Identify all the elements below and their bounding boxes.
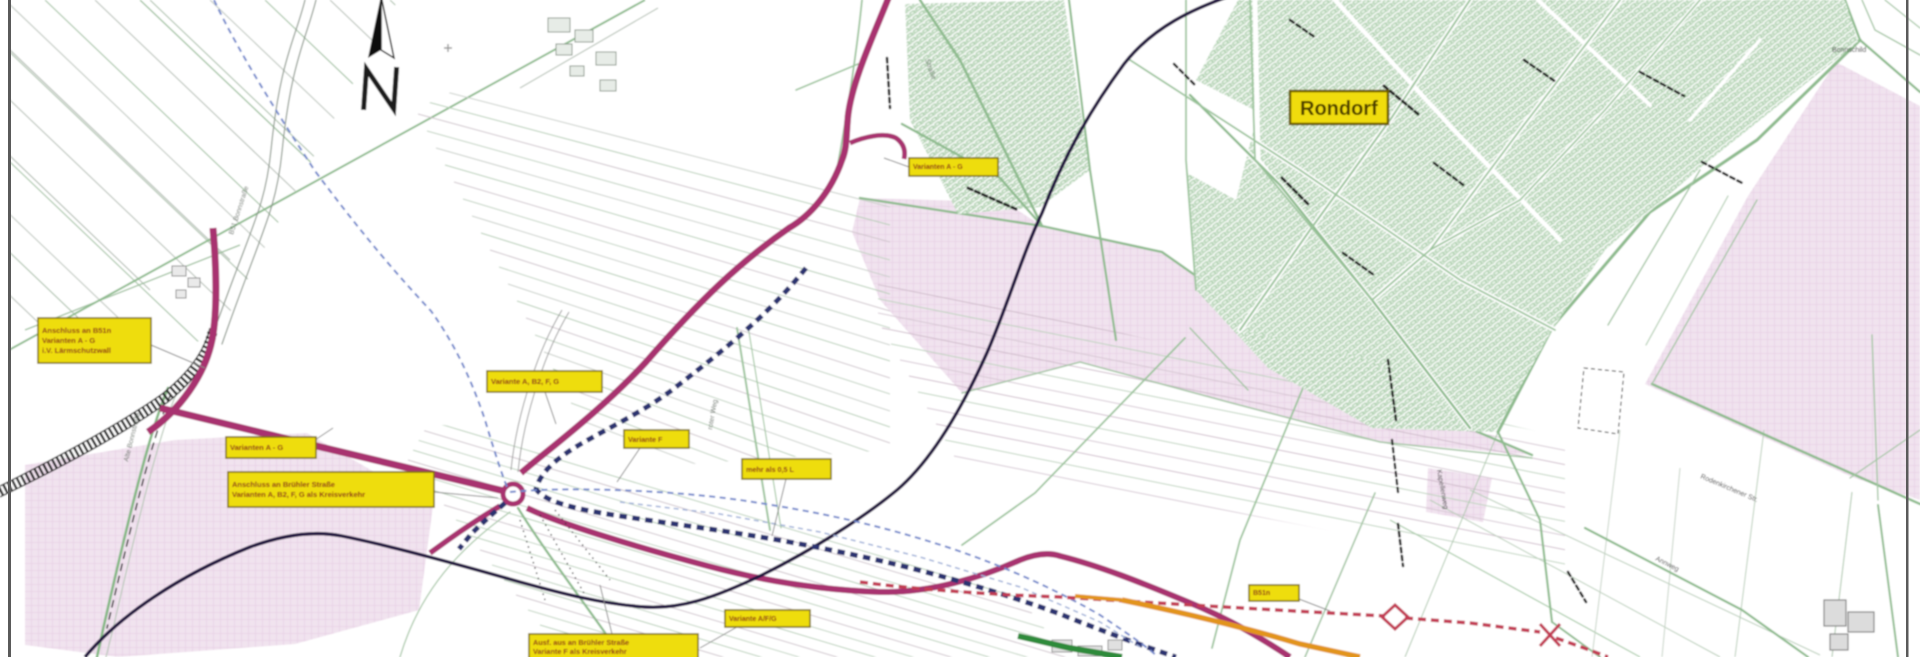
svg-text:Variante F: Variante F: [628, 435, 663, 444]
svg-text:Anschluss an Brühler Straße: Anschluss an Brühler Straße: [232, 480, 335, 489]
svg-text:Variante F als Kreisverkehr: Variante F als Kreisverkehr: [533, 647, 627, 656]
svg-text:Rondorf: Rondorf: [1300, 98, 1378, 120]
svg-text:Varianten A - G: Varianten A - G: [230, 443, 283, 452]
svg-text:i.V. Lärmschutzwall: i.V. Lärmschutzwall: [42, 346, 111, 355]
svg-text:Bonnschild: Bonnschild: [1832, 47, 1866, 54]
svg-text:Varianten A - G: Varianten A - G: [913, 164, 963, 171]
svg-text:Varianten A, B2, F, G als Krei: Varianten A, B2, F, G als Kreisverkehr: [232, 490, 365, 499]
svg-text:B51n: B51n: [1253, 590, 1270, 597]
svg-text:mehr als 0,5 L: mehr als 0,5 L: [746, 465, 795, 474]
svg-text:Variante A/F/G: Variante A/F/G: [729, 616, 777, 623]
svg-text:Ausf. aus an Brühler Straße: Ausf. aus an Brühler Straße: [533, 638, 629, 647]
svg-text:Variante A, B2, F, G: Variante A, B2, F, G: [491, 377, 559, 386]
svg-text:Anschluss an B51n: Anschluss an B51n: [42, 326, 112, 335]
svg-text:Varianten A - G: Varianten A - G: [42, 336, 95, 345]
